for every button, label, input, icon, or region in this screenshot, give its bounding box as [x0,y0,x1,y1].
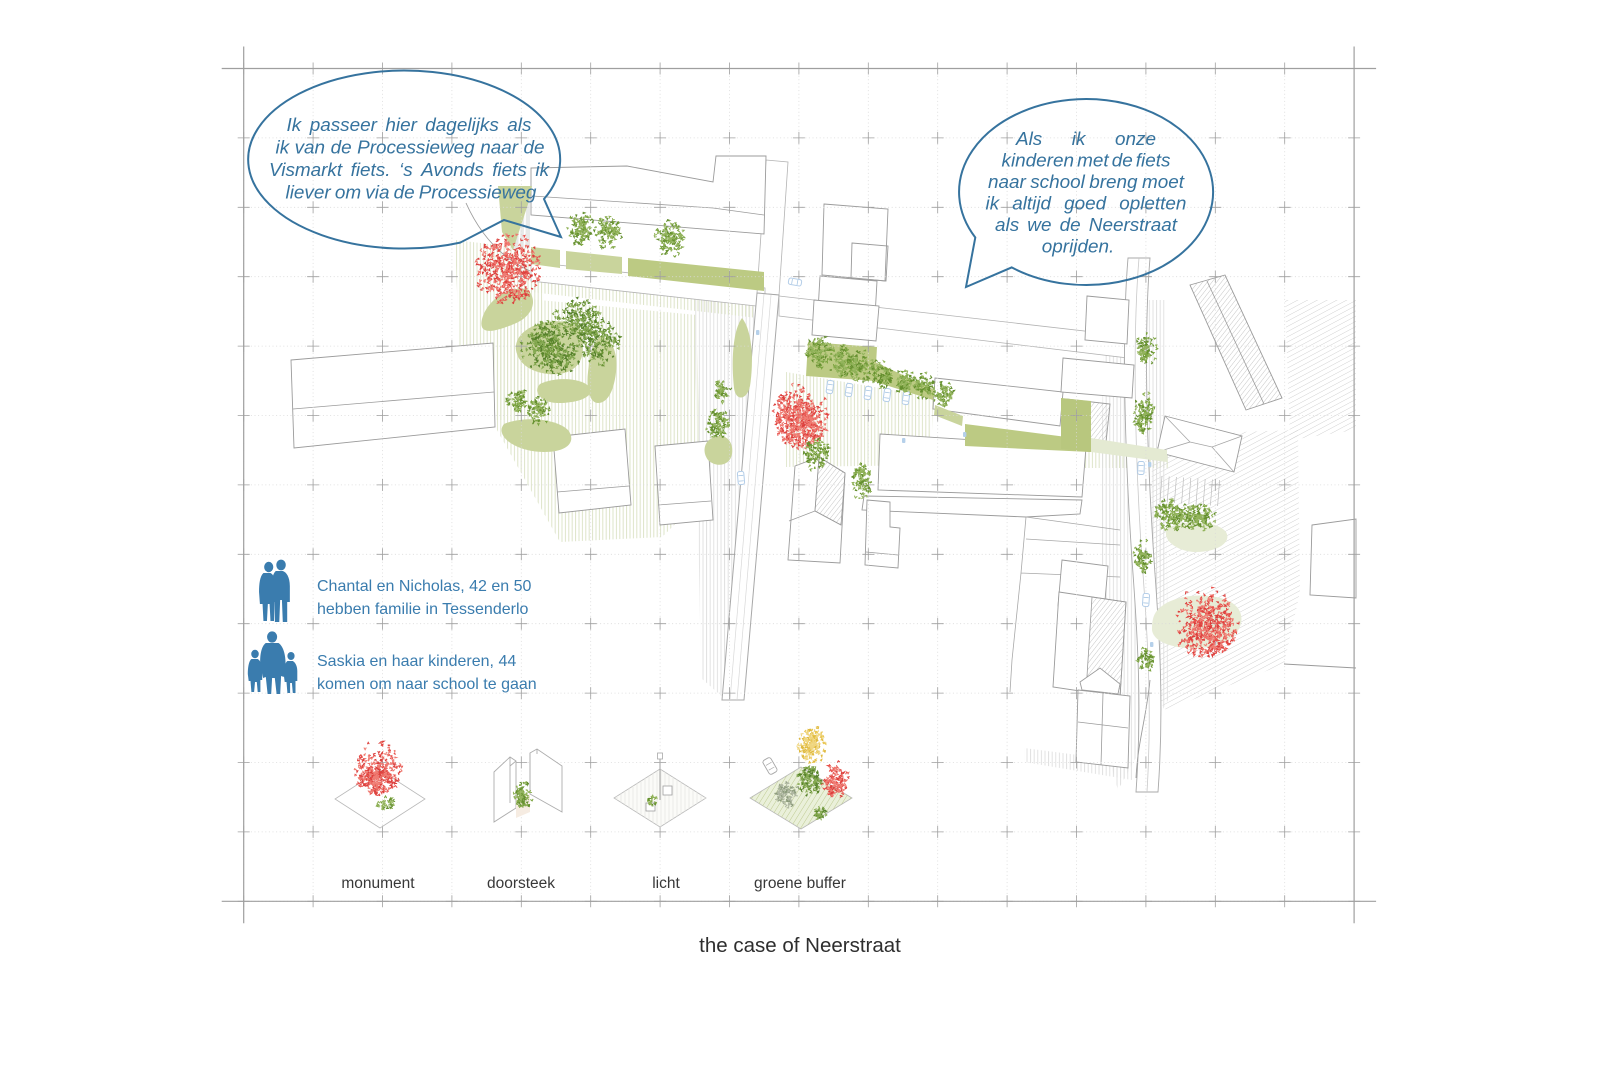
svg-text:ikvandeProcessiewegnaarde: ikvandeProcessiewegnaarde [276,138,545,159]
svg-text:hebben familie in Tessenderlo: hebben familie in Tessenderlo [317,601,529,618]
svg-text:Chantal en Nicholas, 42 en 50: Chantal en Nicholas, 42 en 50 [317,578,531,595]
svg-text:komen om naar school te gaan: komen om naar school te gaan [317,676,537,693]
svg-text:the case of Neerstraat: the case of Neerstraat [699,934,901,957]
svg-text:licht: licht [652,875,680,892]
svg-text:Ikpasseerhierdagelijksals: Ikpasseerhierdagelijksals [287,115,533,136]
svg-text:ikaltijdgoedopletten: ikaltijdgoedopletten [986,194,1187,215]
svg-text:groene buffer: groene buffer [754,875,846,892]
svg-text:Vismarktfiets.‘sAvondsfietsik: Vismarktfiets.‘sAvondsfietsik [269,160,551,181]
svg-text:Saskia en haar kinderen, 44: Saskia en haar kinderen, 44 [317,653,516,670]
svg-text:lieveromviadeProcessieweg: lieveromviadeProcessieweg [286,183,537,204]
svg-text:oprijden.: oprijden. [1042,237,1114,258]
svg-text:doorsteek: doorsteek [487,875,555,892]
svg-text:monument: monument [341,875,415,892]
svg-text:kinderenmetdefiets: kinderenmetdefiets [1002,151,1171,172]
